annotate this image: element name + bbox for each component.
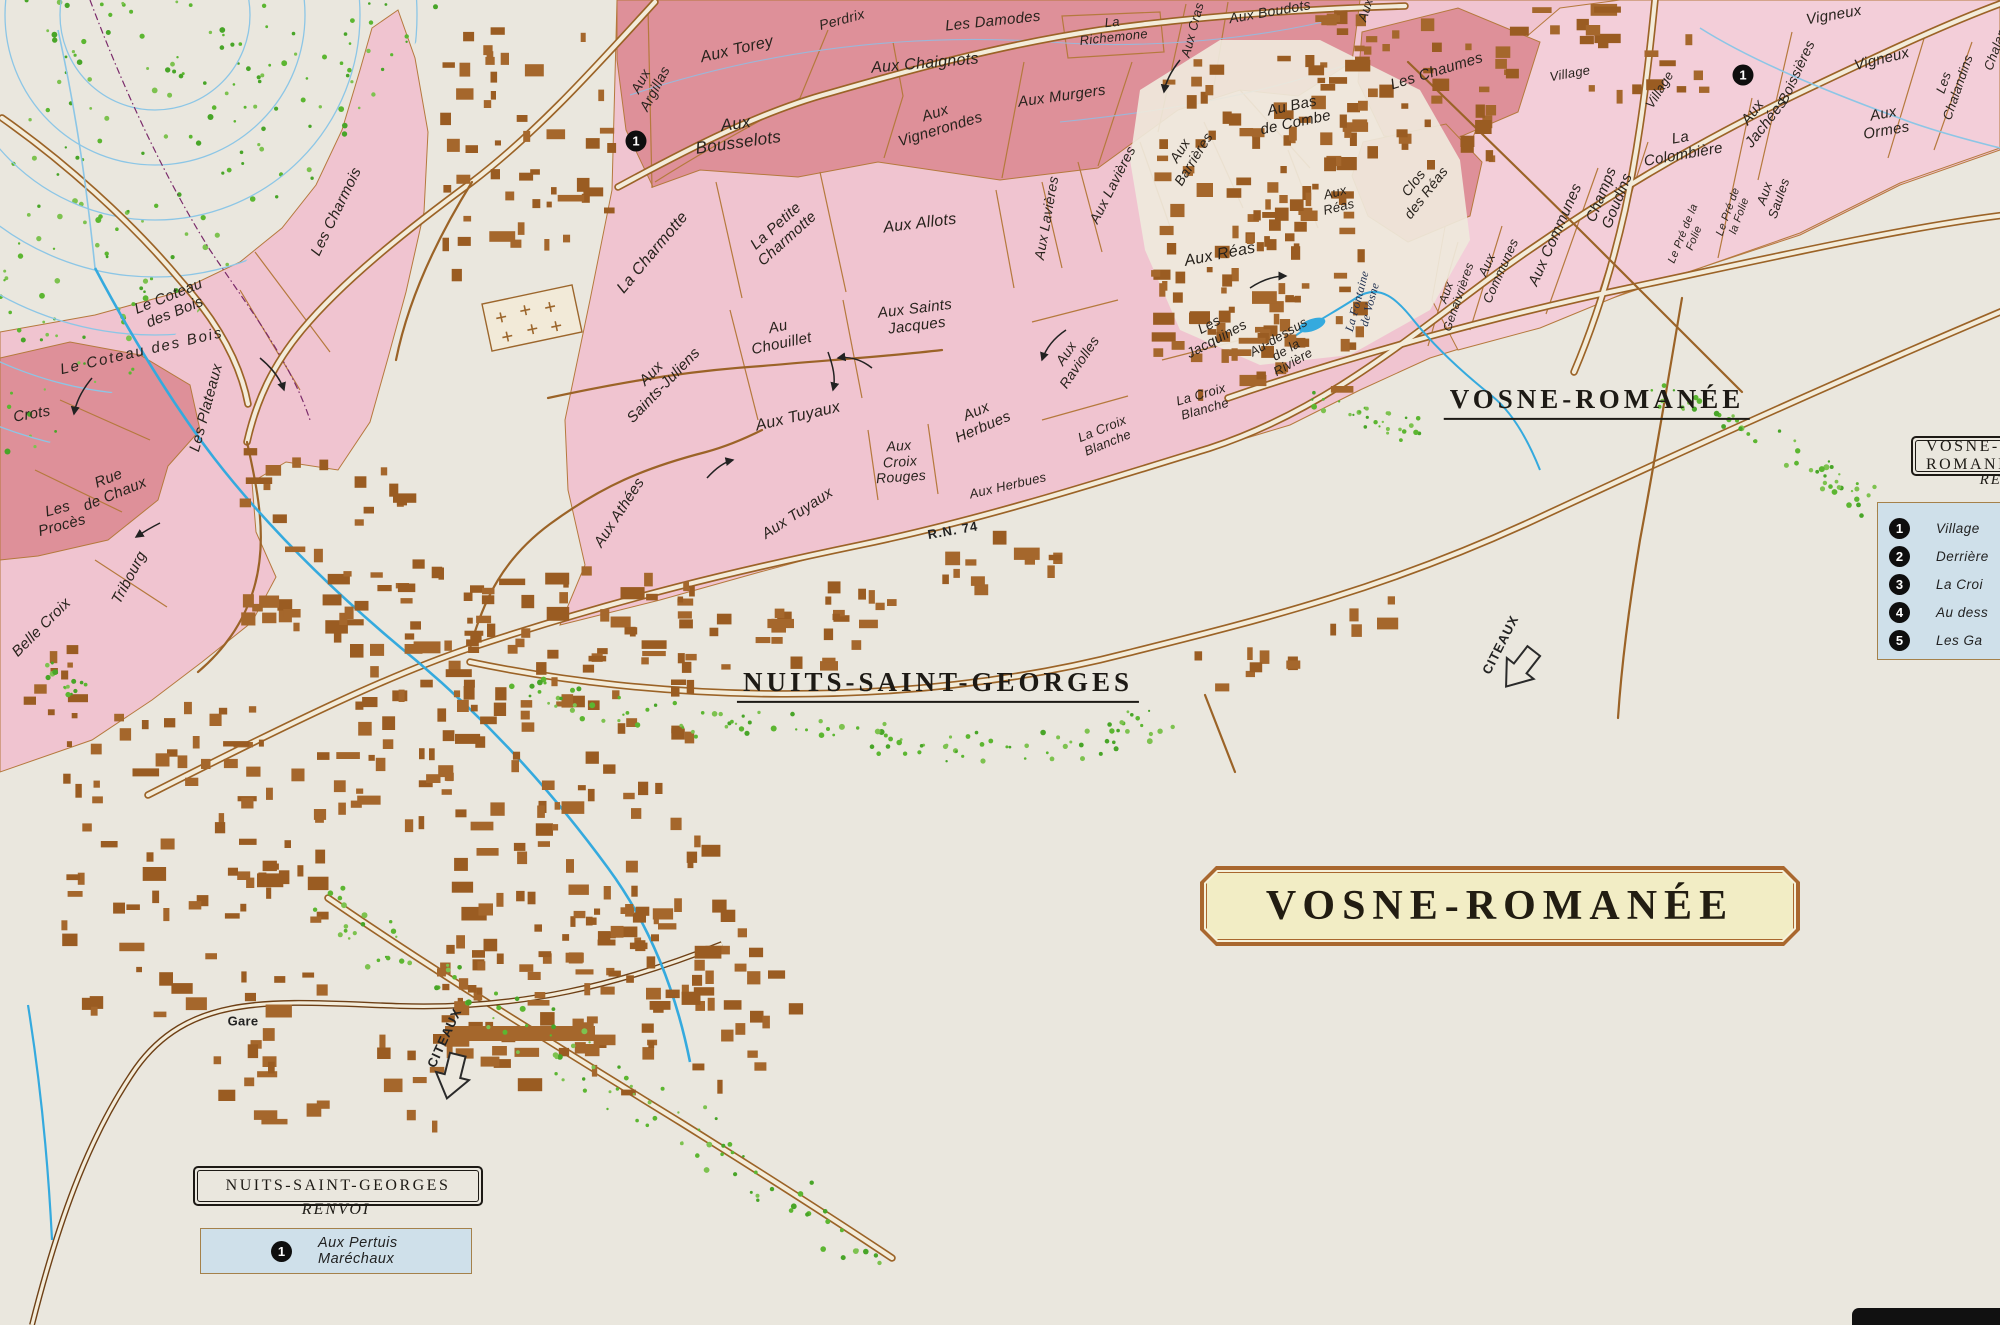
numbered-marker: 1: [1733, 65, 1754, 86]
vosne-legend-item: 5Les Ga: [1889, 626, 2000, 654]
map-label: Au-dessus de la Rivière: [1247, 315, 1324, 385]
vosne-legend-panel: 1Village2Derrière3La Croi4Au dess5Les Ga: [1877, 502, 2000, 660]
map-label: Aux: [1355, 0, 1376, 23]
map-label: Aux Saints Jacques: [877, 297, 955, 339]
map-label: Boissières: [1776, 38, 1819, 106]
map-label: Le Coteau des Bois: [132, 276, 211, 334]
map-label: Aux Chaignots: [870, 50, 979, 77]
map-label: Aux Herbues: [946, 393, 1013, 447]
map-label: Rue de Chaux: [75, 459, 149, 515]
nsg-legend-title: NUITS-SAINT-GEORGES: [197, 1170, 479, 1202]
legend-number-badge: 5: [1889, 630, 1910, 651]
nsg-legend-panel: 1 Aux Pertuis Maréchaux: [200, 1228, 472, 1274]
map-label: Aux Tuyaux: [754, 399, 842, 436]
map-label: Aux Communes: [1526, 181, 1586, 289]
map-label: Aux Croix Rouges: [873, 437, 926, 487]
vosne-legend-item-label: Derrière: [1936, 549, 1989, 564]
map-label: Chalandins: [1982, 4, 2000, 73]
map-label: Aux Argillas: [623, 56, 673, 113]
vosne-legend-title: VOSNE-ROMANÉE: [1915, 440, 2000, 472]
vosne-legend-title-box: VOSNE-ROMANÉE: [1911, 436, 2000, 476]
map-label: Au Chouillet: [747, 313, 814, 359]
map-label: La Charmotte: [614, 209, 692, 298]
map-label: Les Chalandins: [1926, 48, 1976, 122]
nsg-legend-subtitle: RENVOI: [302, 1201, 370, 1219]
wine-map-page: Le Coteau des BoisLe Coteau des BoisLes …: [0, 0, 2000, 1325]
map-labels-layer: Le Coteau des BoisLe Coteau des BoisLes …: [0, 0, 2000, 1325]
map-label: Vigneux: [1805, 3, 1863, 29]
map-label: CITEAUX: [1480, 613, 1522, 677]
map-label: Les Charmois: [308, 165, 365, 259]
map-label: La Croix Blanche: [1175, 381, 1232, 423]
map-label: R.N. 74: [927, 519, 980, 542]
map-label: Perdrix: [818, 6, 867, 33]
nsg-legend-item-label: Aux Pertuis Maréchaux: [318, 1235, 471, 1267]
map-label: Le Pré de la Folie: [1714, 186, 1754, 242]
map-label: Les Plateaux: [187, 362, 227, 454]
map-label: Aux Herbues: [968, 470, 1048, 502]
vosne-legend-item-label: La Croi: [1936, 577, 1983, 592]
map-label: Aux Torey: [699, 33, 775, 67]
map-label: Aux Bousselots: [692, 108, 783, 158]
map-frame-corner: [1852, 1308, 2000, 1325]
map-label: Aux Saints-Juliens: [612, 333, 704, 427]
map-label: La Petite Charmotte: [744, 196, 821, 270]
map-label: Aux Lavières: [1032, 175, 1062, 261]
vosne-legend-item: 3La Croi: [1889, 570, 2000, 598]
legend-number-badge: 2: [1889, 546, 1910, 567]
marker-number: 1: [1733, 65, 1754, 86]
map-label: Clos des Réas: [1389, 154, 1452, 222]
marker-number: 1: [626, 131, 647, 152]
vosne-legend-item: 1Village: [1889, 514, 2000, 542]
map-label: CITEAUX: [425, 1006, 465, 1070]
legend-number-badge: 1: [1889, 518, 1910, 539]
vosne-legend-item-label: Au dess: [1936, 605, 1988, 620]
map-label: Aux Athées: [591, 475, 648, 551]
map-label: Aux Raviolles: [1043, 325, 1102, 392]
map-label: La Fontaine de Vosne: [1343, 269, 1385, 336]
map-label: Aux Lavières: [1087, 144, 1139, 226]
map-label: Aux Vignerondes: [891, 93, 984, 151]
town-label: NUITS-SAINT-GEORGES: [737, 667, 1139, 703]
map-label: Au Bas de Combe: [1255, 91, 1332, 139]
map-label: Le Coteau des Bois: [59, 325, 225, 379]
nsg-legend-title-box: NUITS-SAINT-GEORGES: [193, 1166, 483, 1206]
map-label: Aux Barrières: [1158, 121, 1216, 188]
map-label: Les Procès: [32, 495, 88, 540]
map-label: Tribourg: [109, 549, 151, 607]
map-label: Belle Croix: [9, 595, 74, 660]
map-label: La Richemone: [1077, 12, 1148, 48]
map-label: Aux Saules: [1751, 172, 1792, 221]
vosne-legend-item: 4Au dess: [1889, 598, 2000, 626]
map-label: Aux Réas: [1183, 239, 1257, 270]
map-label: Vigneux: [1853, 45, 1911, 75]
map-label: Les Jacquines: [1177, 303, 1250, 362]
banner-inner-frame: VOSNE-ROMANÉE: [1204, 870, 1796, 942]
vosne-legend-subtitle: RENVOI: [1980, 472, 2000, 489]
map-label: Aux Boudots: [1228, 0, 1312, 27]
map-label: Village: [1549, 63, 1592, 84]
town-label: VOSNE-ROMANÉE: [1444, 384, 1750, 420]
map-label: Aux Ormes: [1859, 102, 1911, 143]
map-label: Aux Cras: [1179, 1, 1208, 59]
appellation-banner: VOSNE-ROMANÉE: [1200, 866, 1800, 946]
legend-number-badge: 1: [271, 1241, 292, 1262]
map-label: Les Damodes: [944, 9, 1041, 36]
map-label: Village: [1643, 69, 1677, 111]
legend-number-badge: 4: [1889, 602, 1910, 623]
map-label: Gare: [228, 1015, 259, 1030]
banner-title: VOSNE-ROMANÉE: [1266, 882, 1734, 930]
map-label: Crots: [12, 403, 52, 426]
map-label: Aux Tuyaux: [759, 485, 836, 543]
map-label: Aux Murgers: [1017, 83, 1107, 112]
legend-number-badge: 3: [1889, 574, 1910, 595]
map-label: Aux Allots: [882, 211, 957, 238]
map-label: La Colombière: [1640, 124, 1724, 171]
nsg-legend-item: 1 Aux Pertuis Maréchaux: [271, 1235, 471, 1267]
map-label: Le Pré de la Folie: [1666, 202, 1712, 270]
vosne-legend-item-label: Village: [1936, 521, 1980, 536]
numbered-marker: 1: [626, 131, 647, 152]
vosne-legend-item-label: Les Ga: [1936, 633, 1983, 648]
map-label: Champs Goudins: [1584, 165, 1637, 231]
map-label: La Croix Blanche: [1076, 413, 1134, 459]
map-label: Aux Réas: [1318, 182, 1356, 218]
vosne-legend-item: 2Derrière: [1889, 542, 2000, 570]
map-label: Les Chaumes: [1389, 50, 1486, 94]
